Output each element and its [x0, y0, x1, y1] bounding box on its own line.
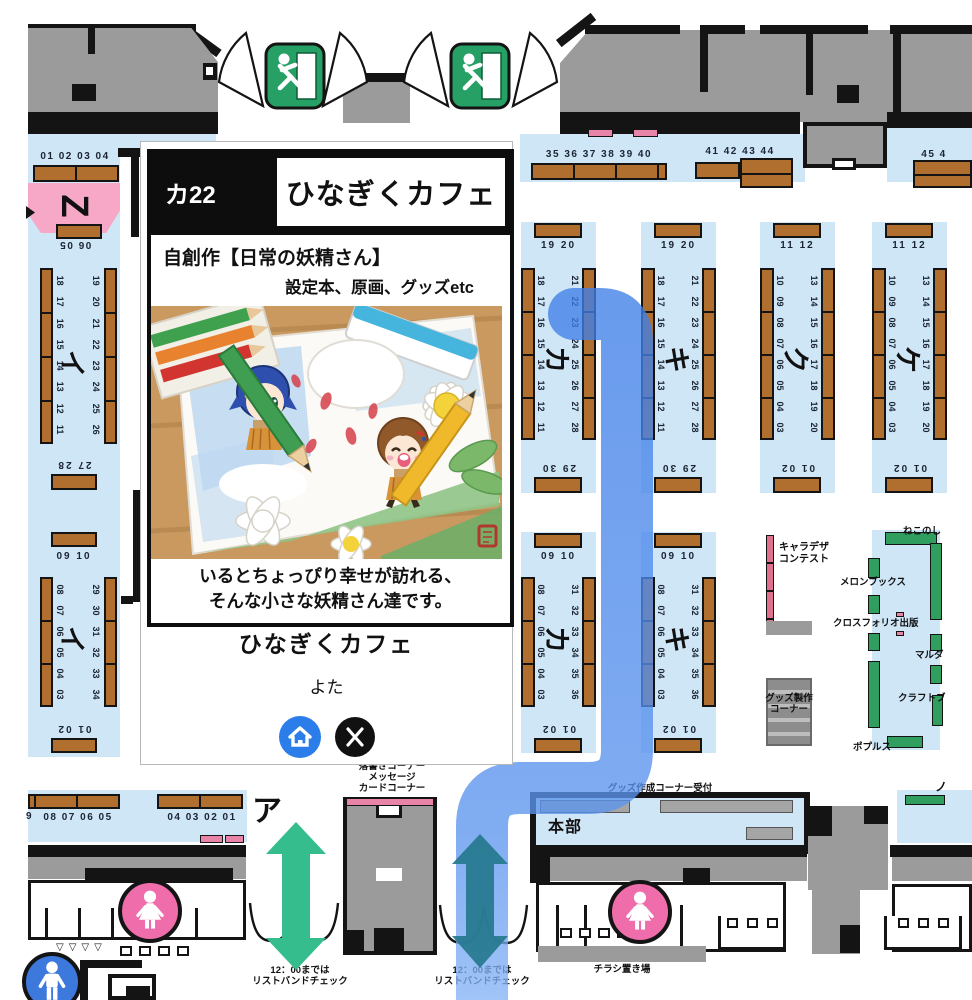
- booth-number: 09: [770, 296, 791, 307]
- description-box: 自創作【日常の妖精さん】 設定本、原画、グッズetc: [151, 231, 510, 306]
- wall: [121, 596, 133, 604]
- booth-number: 11: [50, 424, 71, 435]
- wall: [760, 25, 868, 34]
- block-label: キ: [659, 602, 698, 677]
- row-numbers: 01 02: [521, 723, 596, 734]
- booth-number: 27: [685, 401, 706, 412]
- building-top-right: [560, 30, 972, 122]
- circle-card: カ22 ひなぎくカフェ 自創作【日常の妖精さん】 設定本、原画、グッズetc: [147, 149, 514, 627]
- table: [104, 577, 117, 707]
- wall: [893, 30, 901, 122]
- booth-number: 28: [685, 422, 706, 433]
- sink-icon: [918, 918, 929, 928]
- caption-box: いるとちょっぴり幸せが訪れる、 そんな小さな妖精さん達です。: [151, 559, 510, 623]
- table: [654, 223, 702, 238]
- booth-number: 11: [531, 422, 552, 433]
- stall-divider: [195, 908, 198, 940]
- goods-corner-label: グッズ製作コーナー: [756, 694, 822, 716]
- booth-number: 21: [685, 275, 706, 286]
- booth-numbers-top: 35 36 37 38 39 40: [528, 148, 670, 161]
- sink-icon: [767, 918, 778, 928]
- booth-block-ki-lower[interactable]: 09 10 080706050403313233343536 キ 01 02: [641, 532, 716, 753]
- booth-block-ka-upper[interactable]: 19 20 18171615141312112122232425262728 カ…: [521, 222, 596, 493]
- wall: [133, 490, 140, 602]
- booth-number: 14: [804, 296, 825, 307]
- charadesign-label: キャラデザコンテスト: [779, 542, 829, 565]
- urinal-icon: ▽: [81, 942, 89, 953]
- row-numbers: 19 20: [521, 240, 596, 251]
- wall: [374, 928, 404, 952]
- table: [534, 223, 582, 238]
- hq-table: [660, 800, 793, 813]
- stall-divider: [584, 905, 587, 947]
- booth-number: 22: [565, 296, 586, 307]
- sink-counter: [718, 916, 786, 950]
- x-link-button[interactable]: [335, 717, 375, 757]
- hq-label: 本部: [548, 813, 582, 837]
- vendor-label: マルダ: [915, 651, 944, 662]
- vendor-label: ねこのし: [903, 527, 941, 538]
- vendor-table: [868, 595, 880, 614]
- charadesign-panel: [766, 535, 774, 623]
- home-icon: [287, 724, 313, 750]
- block-label: カ: [539, 322, 578, 397]
- entrance-arrow-teal: [452, 834, 508, 968]
- row-numbers: 29 30: [521, 462, 596, 473]
- urinal-row: ▽▽ ▽▽: [56, 942, 102, 953]
- author-name: よた: [141, 673, 512, 698]
- mens-restroom-icon: [22, 952, 82, 1000]
- booth-number: 28: [565, 422, 586, 433]
- wall: [700, 30, 708, 92]
- urinal-icon: ▽: [94, 942, 102, 953]
- block-label-a: ア: [252, 786, 282, 830]
- genre-line: 自創作【日常の妖精さん】: [163, 243, 500, 270]
- booth-block-i-upper[interactable]: 18171615141312111920212223242526 イ 27 28: [28, 262, 120, 490]
- womens-restroom-icon: [118, 879, 182, 943]
- row-numbers: 01 02: [872, 462, 947, 473]
- vendor-label: メロンブックス: [840, 578, 906, 589]
- booth-block-ka-lower[interactable]: 09 10 080706050403313233343536 カ 01 02: [521, 532, 596, 753]
- vendor-table: [905, 795, 945, 805]
- stall-divider: [111, 908, 114, 940]
- booth-number: 04: [770, 401, 791, 412]
- womens-restroom-icon: [608, 880, 672, 944]
- caption-line: いるとちょっぴり幸せが訪れる、: [155, 564, 506, 589]
- booth-number: 12: [651, 401, 672, 412]
- table: [34, 794, 120, 809]
- wall: [837, 85, 859, 103]
- booth-number: 14: [916, 296, 937, 307]
- sink-counter: [884, 916, 962, 950]
- table: [702, 577, 716, 707]
- wall: [683, 868, 710, 883]
- wall: [808, 806, 832, 836]
- woman-figure: [618, 890, 662, 934]
- hq-table: [540, 800, 630, 813]
- structure: [766, 621, 812, 635]
- booth-number: 03: [50, 689, 71, 700]
- booth-number: 19: [804, 401, 825, 412]
- wall: [864, 806, 888, 824]
- table: [740, 158, 793, 188]
- booth-number: 12: [531, 401, 552, 412]
- booth-number: 20: [804, 422, 825, 433]
- sink-icon: [898, 918, 909, 928]
- toilet-icon: [120, 946, 132, 956]
- circle-cut-illustration: [151, 306, 502, 559]
- toilet-icon: [598, 928, 610, 938]
- rakugaki-label: 落書きコーナーメッセージカードコーナー: [332, 762, 452, 795]
- vendor-table: [930, 634, 942, 651]
- booth-number: 17: [50, 296, 71, 307]
- booth-number: 18: [651, 275, 672, 286]
- man-figure: [31, 961, 73, 1000]
- wall: [131, 155, 139, 237]
- table: [760, 268, 774, 440]
- block-label: ケ: [890, 322, 929, 397]
- table: [641, 577, 655, 707]
- poster-spot: [200, 835, 223, 843]
- toilet-icon: [158, 946, 170, 956]
- booth-number: 19: [916, 401, 937, 412]
- vendor-label: クロスフォリオ出版: [833, 619, 919, 630]
- row-numbers: 11 12: [760, 240, 835, 251]
- table: [40, 268, 53, 444]
- booth-number: 31: [565, 584, 586, 595]
- building-top-center: [343, 82, 410, 123]
- vendor-table: [930, 665, 942, 684]
- booth-block-ke[interactable]: 11 12 10090807060504031314151617181920 ケ…: [872, 222, 947, 493]
- partial-label: ノ: [935, 781, 947, 795]
- row-numbers: 11 12: [872, 240, 947, 251]
- table: [885, 477, 933, 493]
- structure-notch: [376, 806, 402, 818]
- table: [773, 223, 821, 238]
- table: [534, 477, 582, 493]
- booth-number: 19: [86, 275, 107, 286]
- table: [695, 162, 740, 179]
- row-numbers: 01 02: [760, 462, 835, 473]
- table: [641, 268, 655, 440]
- booth-number: 08: [531, 584, 552, 595]
- booth-number: 36: [565, 689, 586, 700]
- table: [821, 268, 835, 440]
- wall: [530, 857, 550, 883]
- booth-block-ku[interactable]: 11 12 10090807060504031314151617181920 ク…: [760, 222, 835, 493]
- wall: [585, 25, 680, 34]
- wall: [530, 845, 807, 857]
- table: [885, 223, 933, 238]
- block-label: ク: [778, 322, 817, 397]
- vendor-label: ポプルス: [853, 743, 891, 754]
- booth-numbers-top: 41 42 43 44: [688, 145, 792, 158]
- booth-number: 20: [86, 296, 107, 307]
- booth-number: 31: [685, 584, 706, 595]
- table: [582, 577, 596, 707]
- structure-notch: [832, 158, 856, 170]
- building-top-left: [28, 88, 218, 114]
- pin-mark: [896, 631, 904, 636]
- vendor-table: [868, 558, 880, 578]
- booth-number: 17: [651, 296, 672, 307]
- table: [51, 532, 97, 547]
- vendor-table: [868, 661, 880, 728]
- stall-divider: [680, 905, 683, 947]
- table: [654, 533, 702, 548]
- circle-name: ひなぎくカフェ: [141, 625, 512, 659]
- floor-map: 35 36 37 38 39 40 41 42 43 44 45 4 01 02…: [0, 0, 972, 1000]
- booth-number: 17: [531, 296, 552, 307]
- wall: [28, 845, 246, 857]
- link-row: [141, 716, 512, 758]
- booth-block-i-lower[interactable]: 09 10 080706050403293031323334 イ 01 02: [28, 532, 120, 753]
- structure-notch: [376, 868, 402, 881]
- home-link-button[interactable]: [279, 716, 321, 758]
- corridor: [892, 857, 972, 881]
- card-header: カ22 ひなぎくカフェ: [151, 153, 510, 231]
- wall: [840, 925, 860, 953]
- vendor-label: クラフトブ: [898, 694, 946, 705]
- wall: [80, 960, 142, 968]
- corridor: [530, 857, 807, 881]
- booth-number: 27: [565, 401, 586, 412]
- poster-spot: [588, 129, 613, 137]
- table: [582, 268, 596, 440]
- booth-number: 21: [565, 275, 586, 286]
- table: [531, 163, 667, 180]
- booth-number: 08: [651, 584, 672, 595]
- wall: [346, 930, 364, 952]
- row-numbers: 09 10: [28, 551, 120, 562]
- row-numbers: 01 02: [28, 723, 120, 734]
- table: [654, 738, 702, 753]
- booth-number: 22: [685, 296, 706, 307]
- table: [654, 477, 702, 493]
- vendor-table: [930, 543, 942, 620]
- booth-popup: カ22 ひなぎくカフェ 自創作【日常の妖精さん】 設定本、原画、グッズetc: [140, 141, 513, 765]
- stall-divider: [556, 905, 559, 947]
- table: [40, 577, 53, 707]
- caption-line: そんな小さな妖精さん達です。: [155, 589, 506, 614]
- table: [104, 268, 117, 444]
- table: [157, 794, 243, 809]
- table: [521, 577, 535, 707]
- booth-number: 36: [685, 689, 706, 700]
- booth-numbers: 06 05: [40, 238, 110, 251]
- block-label: イ: [55, 594, 94, 686]
- poster-spot: [633, 129, 658, 137]
- table: [51, 738, 97, 753]
- booth-number: 03: [882, 422, 903, 433]
- booth-number: 10: [770, 275, 791, 286]
- table: [51, 474, 97, 490]
- wristband-note-right: 12：00まではリストバンドチェック: [422, 966, 542, 988]
- table: [534, 533, 582, 548]
- toilet-row: [120, 946, 189, 956]
- booth-number: 11: [651, 422, 672, 433]
- table: [702, 268, 716, 440]
- sink-icon: [747, 918, 758, 928]
- urinal-icon: ▽: [69, 942, 77, 953]
- chirashi-platform: [538, 946, 706, 962]
- vendor-table: [868, 633, 880, 651]
- x-icon: [345, 727, 365, 747]
- booth-number: 13: [804, 275, 825, 286]
- entrance-arrow-green: [266, 822, 326, 970]
- stall-divider: [78, 908, 81, 940]
- pin-mark: [896, 612, 904, 617]
- row-numbers: 29 30: [641, 462, 716, 473]
- booth-number: 03: [531, 689, 552, 700]
- items-line: 設定本、原画、グッズetc: [163, 270, 500, 300]
- wall: [28, 112, 218, 134]
- toilet-icon: [560, 928, 572, 938]
- poster-spot: [225, 835, 244, 843]
- table: [872, 268, 886, 440]
- booth-number: 10: [882, 275, 903, 286]
- booth-code: カ22: [151, 153, 277, 231]
- table: [933, 268, 947, 440]
- vendor-table: [887, 736, 923, 748]
- row-numbers: 01 02: [641, 723, 716, 734]
- wall: [72, 84, 96, 101]
- stall-divider: [45, 908, 48, 940]
- table: [773, 477, 821, 493]
- booth-number: 04: [882, 401, 903, 412]
- row-numbers: 09 10: [641, 551, 716, 562]
- building-top-left: [28, 28, 218, 90]
- urinal-icon: ▽: [56, 942, 64, 953]
- booth-numbers: 08 07 06 05: [34, 811, 122, 823]
- block-label: カ: [539, 602, 578, 677]
- poster-spot: [346, 798, 434, 806]
- table: [913, 160, 972, 188]
- sink-icon: [938, 918, 949, 928]
- booth-number: 09: [882, 296, 903, 307]
- booth-number: 03: [651, 689, 672, 700]
- toilet-icon: [177, 946, 189, 956]
- booth-numbers: 04 03 02 01: [158, 811, 246, 823]
- table: [534, 738, 582, 753]
- booth-number: 26: [86, 424, 107, 435]
- door-mark: [206, 67, 213, 75]
- row-numbers: 09 10: [521, 551, 596, 562]
- booth-number: 18: [531, 275, 552, 286]
- toilet-icon: [139, 946, 151, 956]
- wall: [887, 112, 972, 128]
- wall: [890, 845, 972, 857]
- booth-number: 18: [50, 275, 71, 286]
- row-numbers: 19 20: [641, 240, 716, 251]
- toilet-icon: [579, 928, 591, 938]
- wall: [890, 25, 972, 34]
- wall: [806, 30, 813, 95]
- wall: [126, 986, 150, 1000]
- block-label: イ: [55, 318, 94, 410]
- block-label: キ: [659, 322, 698, 397]
- table: [521, 268, 535, 440]
- table: [56, 224, 102, 239]
- booth-number: 03: [770, 422, 791, 433]
- booth-number: 13: [916, 275, 937, 286]
- booth-number: 34: [86, 689, 107, 700]
- woman-figure: [128, 889, 172, 933]
- booth-block-ki-upper[interactable]: 19 20 18171615141312112122232425262728 キ…: [641, 222, 716, 493]
- row-numbers: 27 28: [28, 459, 120, 470]
- booth-numbers: 9: [26, 811, 33, 822]
- wristband-note-left: 12：00まではリストバンドチェック: [240, 966, 360, 988]
- chirashi-label: チラシ置き場: [560, 964, 684, 976]
- wall: [88, 28, 95, 54]
- circle-title: ひなぎくカフェ: [277, 158, 505, 226]
- sink-icon: [727, 918, 738, 928]
- hq-table: [746, 827, 793, 840]
- booth-number: 20: [916, 422, 937, 433]
